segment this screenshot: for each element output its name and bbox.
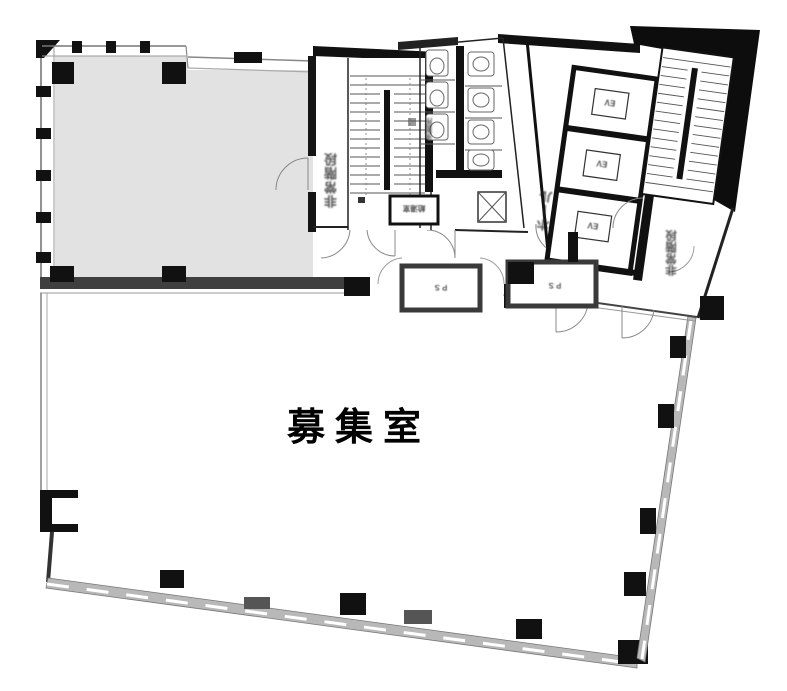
gray-room — [55, 56, 313, 278]
floor-plan-drawing — [0, 0, 787, 691]
column — [624, 572, 646, 596]
column — [244, 597, 270, 609]
wall-segment — [234, 52, 262, 63]
column — [162, 266, 186, 282]
column — [516, 619, 542, 639]
elevator-car — [592, 89, 629, 119]
pipe-space-box — [478, 192, 506, 222]
column — [340, 593, 366, 615]
elevator-car — [574, 211, 611, 241]
column — [404, 610, 432, 624]
shaft-box — [402, 266, 480, 310]
column — [50, 266, 74, 282]
elevator-car — [583, 150, 620, 180]
floor-plan: 募集室 非常階段 ホール 非常階段 洗面所 給湯室 EV EV EV ＰＳ ＰＳ — [0, 0, 787, 691]
column — [640, 508, 656, 534]
column — [670, 336, 686, 358]
column — [52, 62, 74, 84]
column — [160, 570, 184, 588]
stair-rail — [384, 90, 390, 190]
column — [658, 404, 674, 428]
column — [700, 296, 724, 320]
kitchenette-room — [390, 196, 438, 224]
column — [344, 277, 370, 296]
column — [162, 62, 186, 84]
